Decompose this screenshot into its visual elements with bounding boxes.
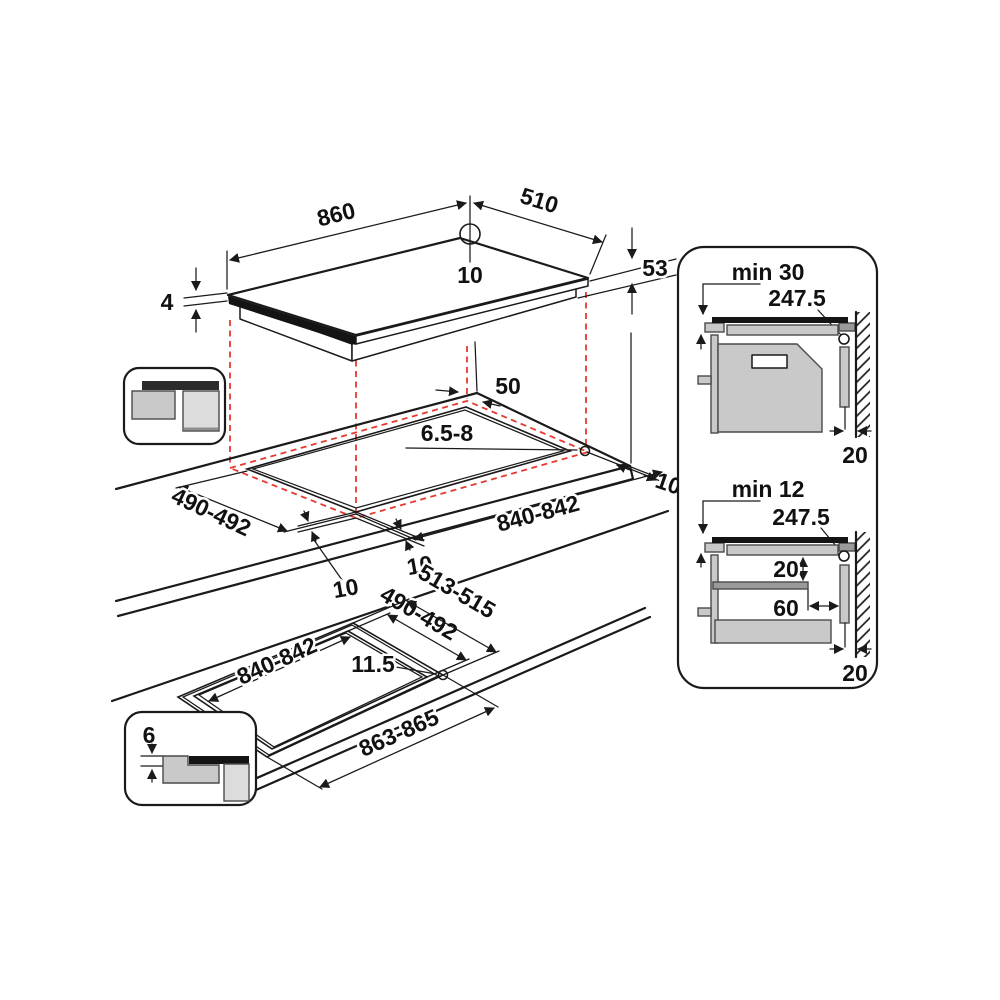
worktop-front-edge <box>116 466 630 601</box>
flush-mount-detail-inset: 6 <box>125 712 256 805</box>
svg-text:840-842: 840-842 <box>494 490 582 537</box>
svg-text:863-865: 863-865 <box>355 704 443 762</box>
surface-mount-detail-inset <box>124 368 225 444</box>
top-isometric-view: 10 860 510 53 4 <box>161 182 676 514</box>
worktop-left-tab2 <box>705 543 724 552</box>
svg-text:4: 4 <box>161 289 174 315</box>
svg-text:10: 10 <box>331 573 361 603</box>
min12-title: min 12 <box>732 476 805 502</box>
dim-overhang-side: 10 <box>298 511 360 603</box>
cutout-outline <box>247 407 570 512</box>
min30-duct-dim: 247.5 <box>768 285 826 311</box>
air-deflector <box>840 347 849 407</box>
drawer-clearance-dim: 20 <box>773 556 799 582</box>
oven-vent <box>752 355 787 368</box>
wall-hatching2 <box>857 532 870 657</box>
drawer-body <box>715 620 831 643</box>
hob-glass-bar <box>712 317 848 323</box>
dim-rebate-depth: 6 <box>143 722 156 748</box>
clearance-panel: min 30 247.5 20 min 12 <box>678 247 877 688</box>
svg-text:490-492: 490-492 <box>168 482 256 541</box>
hob-installation-diagram-page: 10 860 510 53 4 <box>0 0 1000 1000</box>
min12-duct-dim: 247.5 <box>772 504 830 530</box>
inset1-worktop-bar <box>142 381 219 390</box>
shelf-bar <box>713 582 808 589</box>
inset1-hob-body <box>132 391 175 419</box>
shelf-setback-dim: 60 <box>773 595 799 621</box>
dim-53: 53 <box>578 228 676 314</box>
worktop-right-tab <box>839 323 855 331</box>
cutout-corner-circle <box>581 447 590 456</box>
corner-projection-line <box>475 342 477 391</box>
min12-wall-gap: 20 <box>842 660 868 686</box>
dim-rebate-length: 863-865 <box>267 675 498 789</box>
min30-title: min 30 <box>732 259 805 285</box>
svg-text:860: 860 <box>314 197 358 232</box>
hob-chassis-bar <box>727 325 838 335</box>
shelf-pin <box>698 376 711 384</box>
dim-hole-offset: 10 <box>457 262 483 288</box>
inset2-cabinet-panel <box>224 764 249 801</box>
svg-text:6.5-8: 6.5-8 <box>421 420 474 446</box>
dim-flush-cutout-length: 840-842 <box>209 632 350 701</box>
svg-text:510: 510 <box>517 182 561 218</box>
svg-text:840-842: 840-842 <box>233 632 321 690</box>
dim-4: 4 <box>161 268 227 332</box>
air-deflector2 <box>840 565 849 623</box>
cabinet-side-panel <box>711 335 718 433</box>
worktop-left-tab <box>705 323 724 332</box>
shelf-pin2 <box>698 608 711 616</box>
svg-text:53: 53 <box>642 255 668 281</box>
worktop-right-tab2 <box>839 543 855 551</box>
svg-text:50: 50 <box>495 373 521 399</box>
svg-text:11.5: 11.5 <box>351 651 395 677</box>
installation-diagram: 10 860 510 53 4 <box>0 0 1000 1000</box>
inset2-glass-bar <box>189 756 249 764</box>
cutout-inner-outline <box>253 410 563 508</box>
inset1-cabinet-panel <box>183 391 219 431</box>
min30-wall-gap: 20 <box>842 442 868 468</box>
slab-front-lower-edge <box>256 617 650 790</box>
hob-chassis-bar2 <box>727 545 838 555</box>
hob-glass-bar2 <box>712 537 848 543</box>
wall-hatching <box>857 312 870 437</box>
